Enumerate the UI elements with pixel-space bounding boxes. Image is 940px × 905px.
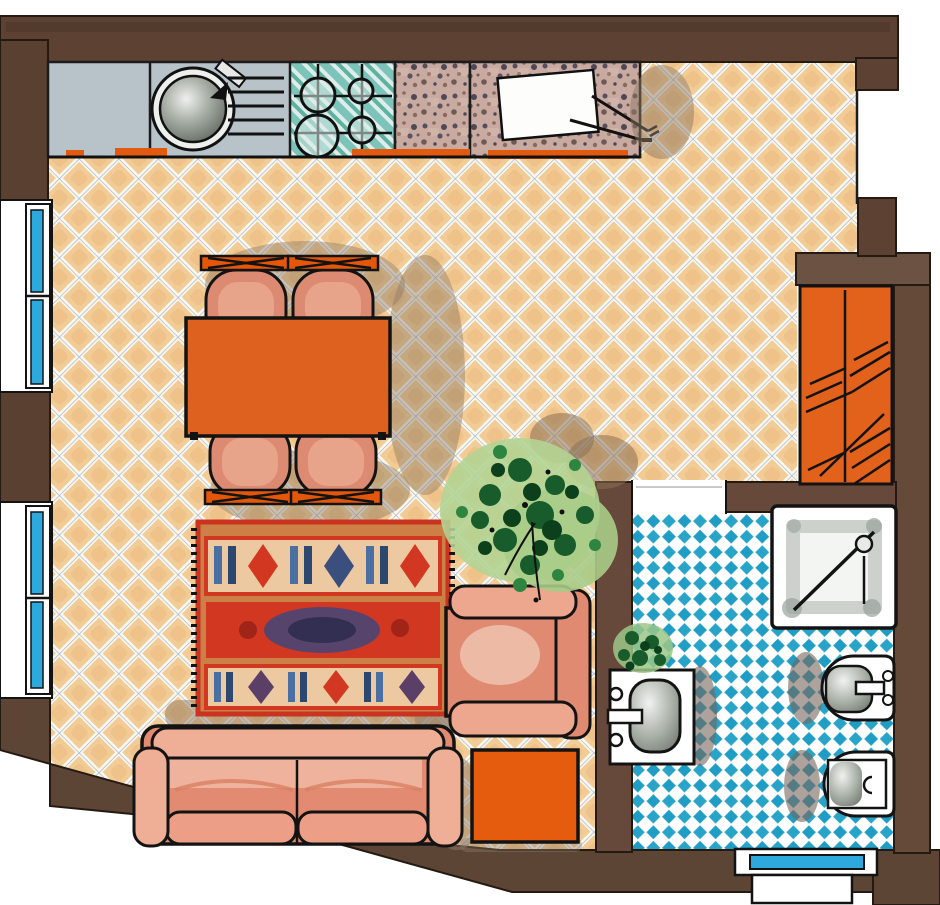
wall-right [894, 253, 930, 853]
side-table-orange [472, 750, 578, 842]
washbasin [608, 670, 694, 764]
floorplan-drawing [0, 0, 940, 905]
kitchen-counter [48, 60, 659, 159]
floorplan-canvas [0, 0, 940, 905]
window-left-lower-pair [0, 502, 52, 698]
window-glass [31, 300, 43, 384]
shower [772, 506, 896, 628]
window-bathroom [735, 849, 877, 903]
washbasin-tap-icon [608, 710, 642, 723]
plant-small [613, 623, 673, 673]
sofa-backrest [152, 728, 444, 758]
window-glass [31, 512, 43, 594]
armchair-armrest-bottom [450, 702, 576, 736]
wall-niche-pillar [858, 198, 896, 256]
sofa-seat-front-right [298, 812, 428, 844]
toilet [824, 752, 894, 816]
window-glass [750, 855, 864, 869]
counter-end-shadow [630, 65, 694, 159]
window-sill [752, 875, 852, 903]
sofa [134, 726, 462, 846]
bidet-tap-icon [856, 682, 884, 694]
window-glass [31, 210, 43, 292]
area-rug [194, 522, 452, 714]
toilet-bowl [830, 762, 862, 806]
wall-left-middle [0, 392, 50, 504]
door-opening-bathroom [632, 480, 726, 514]
wall-bottom-right-corner [873, 850, 940, 905]
bidet [822, 656, 894, 720]
sofa-armrest-left [134, 748, 168, 846]
wardrobe [800, 286, 892, 484]
worktop-speckled-1 [395, 62, 470, 157]
window-glass [31, 602, 43, 688]
sofa-seat-front-left [166, 812, 296, 844]
shower-head-icon [856, 536, 872, 552]
sofa-armrest-right [428, 748, 462, 846]
window-left-upper-pair [0, 200, 52, 392]
armchair [446, 586, 590, 738]
wall-top-right-step [856, 58, 898, 90]
dining-table [186, 318, 390, 440]
wall-left-upper [0, 40, 48, 202]
wall-niche-top [796, 253, 930, 285]
